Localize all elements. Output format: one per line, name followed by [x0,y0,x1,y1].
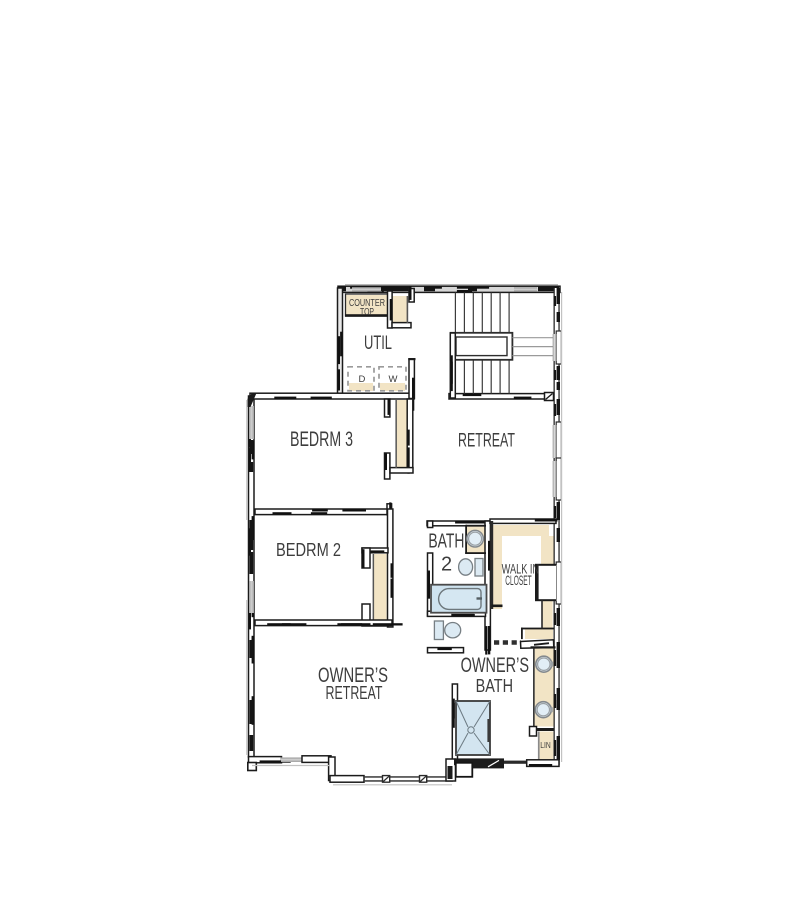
svg-text:BEDRM 3: BEDRM 3 [290,428,353,451]
svg-text:RETREAT: RETREAT [326,683,383,703]
svg-text:LIN: LIN [540,740,551,750]
svg-text:OWNER’S: OWNER’S [461,654,529,677]
svg-text:BEDRM 2: BEDRM 2 [276,539,341,560]
svg-text:TOP: TOP [360,306,374,318]
svg-text:D: D [359,374,366,385]
svg-text:UTIL: UTIL [364,333,392,354]
svg-text:CLOSET: CLOSET [505,572,532,588]
svg-text:2: 2 [441,554,452,576]
svg-text:BATH: BATH [428,531,464,553]
svg-text:W: W [389,374,398,385]
svg-text:BATH: BATH [476,675,513,696]
svg-text:RETREAT: RETREAT [458,430,515,451]
